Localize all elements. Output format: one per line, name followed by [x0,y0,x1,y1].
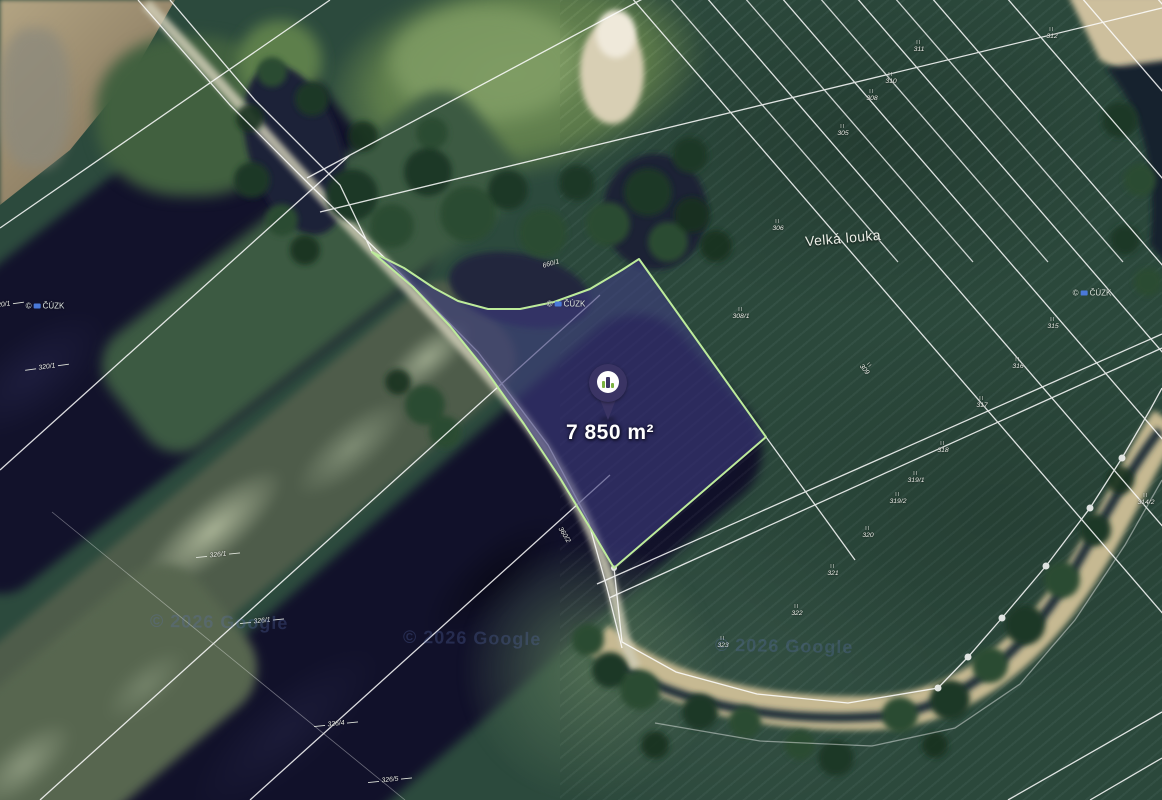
shading-overlay [0,0,1162,800]
parcel-number-label: II322 [791,605,802,617]
parcel-number-label: 326/4 [314,718,359,730]
bright-meadow-area [305,0,726,212]
cuzk-watermark: ©ČÚZK [26,302,65,311]
parcel-number-label: II318 [937,442,948,454]
parcel-number-label: II317 [976,397,987,409]
google-watermark: © 2026 Google [403,627,542,650]
dirt-area-top-left [0,0,185,215]
marsh-band [0,265,532,776]
grass-bottom-center [460,540,720,800]
pond-upper [0,40,452,610]
pin-logo-icon [597,371,619,393]
tree-canopy [234,57,1162,776]
parcel-number-label: II319/2 [889,493,906,505]
parcel-number-label: II306 [772,220,783,232]
parcel-number-label: 326/5 [368,774,413,786]
satellite-map[interactable]: Velká louka II312II311II310II308II305II3… [0,0,1162,800]
pin-head [589,364,627,402]
parcel-number-label: II312 [1046,28,1057,40]
location-pin[interactable] [589,364,627,424]
parcel-number-label: II305 [837,125,848,137]
cuzk-watermark: ©ČÚZK [547,300,586,309]
parcel-number-label: 326/1 [196,549,241,561]
parcel-number-label: II311 [914,41,925,53]
place-label: Velká louka [804,227,881,250]
parcel-number-label: 360/2 [556,526,571,544]
parcel-number-label: II310 [885,73,896,85]
parcel-number-label: II320 [862,527,873,539]
cuzk-watermark: ©ČÚZK [1073,289,1112,298]
marsh-bottom-left [0,544,278,800]
parcel-number-label: II321 [827,565,838,577]
map-graphics [0,0,1162,800]
river-imagery [146,0,1162,718]
cuzk-logo-icon [555,302,562,307]
parcel-number-label: 660/1 [542,258,560,270]
google-watermark: © 2026 Google [150,611,289,634]
area-label: 7 850 m² [546,421,674,445]
parcel-number-label: II314/2 [1137,494,1154,506]
parcel-number-label: II309 [858,360,875,377]
parcel-number-label: II316 [1012,358,1023,370]
parcel-number-label: II315 [1047,318,1058,330]
gravel-patch [0,28,70,168]
pond-lower [0,290,787,800]
parcel-number-label: II308/1 [732,308,749,320]
parcel-number-label: 320/1 [25,360,70,373]
google-watermark: © 2026 Google [715,635,854,658]
parcel-number-label: II308 [866,90,877,102]
grass-strip-mid [86,75,535,469]
cuzk-logo-icon [1081,291,1088,296]
parcel-number-label: 320/1 [0,298,24,311]
parcel-number-label: II319/1 [907,472,924,484]
cuzk-logo-icon [34,304,41,309]
grass-strip-top-left [96,36,286,196]
bright-meadow-highlight [390,5,580,120]
cadastral-lines [0,0,1162,800]
meadow-texture [560,0,1162,800]
